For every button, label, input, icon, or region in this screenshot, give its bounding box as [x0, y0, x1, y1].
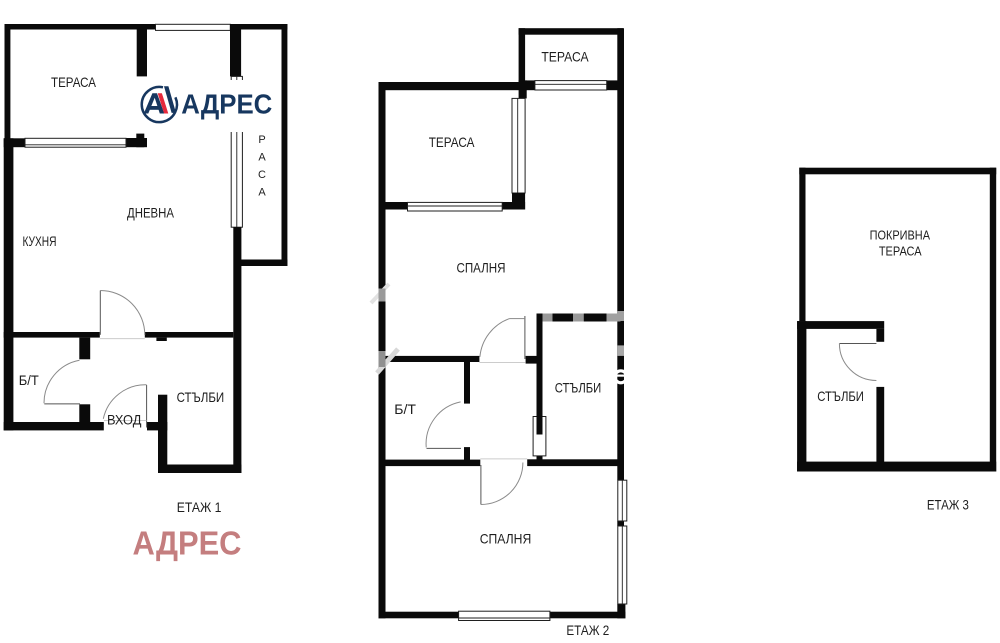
svg-text:Б/Т: Б/Т	[19, 373, 39, 388]
svg-text:АДРЕС: АДРЕС	[181, 88, 272, 119]
svg-text:СПАЛНЯ: СПАЛНЯ	[457, 261, 506, 276]
svg-text:КУХНЯ: КУХНЯ	[23, 234, 57, 249]
svg-text:АДРЕС: АДРЕС	[133, 525, 242, 562]
svg-text:ТЕРАСА: ТЕРАСА	[51, 75, 97, 90]
svg-text:ЕТАЖ 1: ЕТАЖ 1	[177, 500, 222, 515]
svg-text:СПАЛНЯ: СПАЛНЯ	[480, 532, 532, 547]
svg-text:А: А	[258, 187, 266, 199]
svg-text:ДНЕВНА: ДНЕВНА	[127, 206, 175, 221]
svg-text:Р: Р	[258, 134, 265, 146]
svg-text:ТЕРАСА: ТЕРАСА	[541, 50, 589, 65]
svg-text:ТЕРАСА: ТЕРАСА	[429, 135, 475, 150]
svg-text:ВХОД: ВХОД	[107, 413, 142, 428]
svg-text:ЕТАЖ 3: ЕТАЖ 3	[927, 498, 969, 513]
svg-text:СТЪЛБИ: СТЪЛБИ	[177, 390, 225, 405]
svg-text:Б/Т: Б/Т	[394, 402, 416, 417]
svg-text:СТЪЛБИ: СТЪЛБИ	[817, 389, 864, 404]
svg-text:ЕТАЖ 2: ЕТАЖ 2	[566, 623, 609, 638]
svg-text:А: А	[258, 152, 266, 164]
svg-text:ПОКРИВНА: ПОКРИВНА	[870, 229, 931, 243]
svg-text:С: С	[258, 169, 266, 181]
svg-text:ТЕРАСА: ТЕРАСА	[879, 245, 922, 259]
svg-text:СТЪЛБИ: СТЪЛБИ	[555, 381, 602, 396]
